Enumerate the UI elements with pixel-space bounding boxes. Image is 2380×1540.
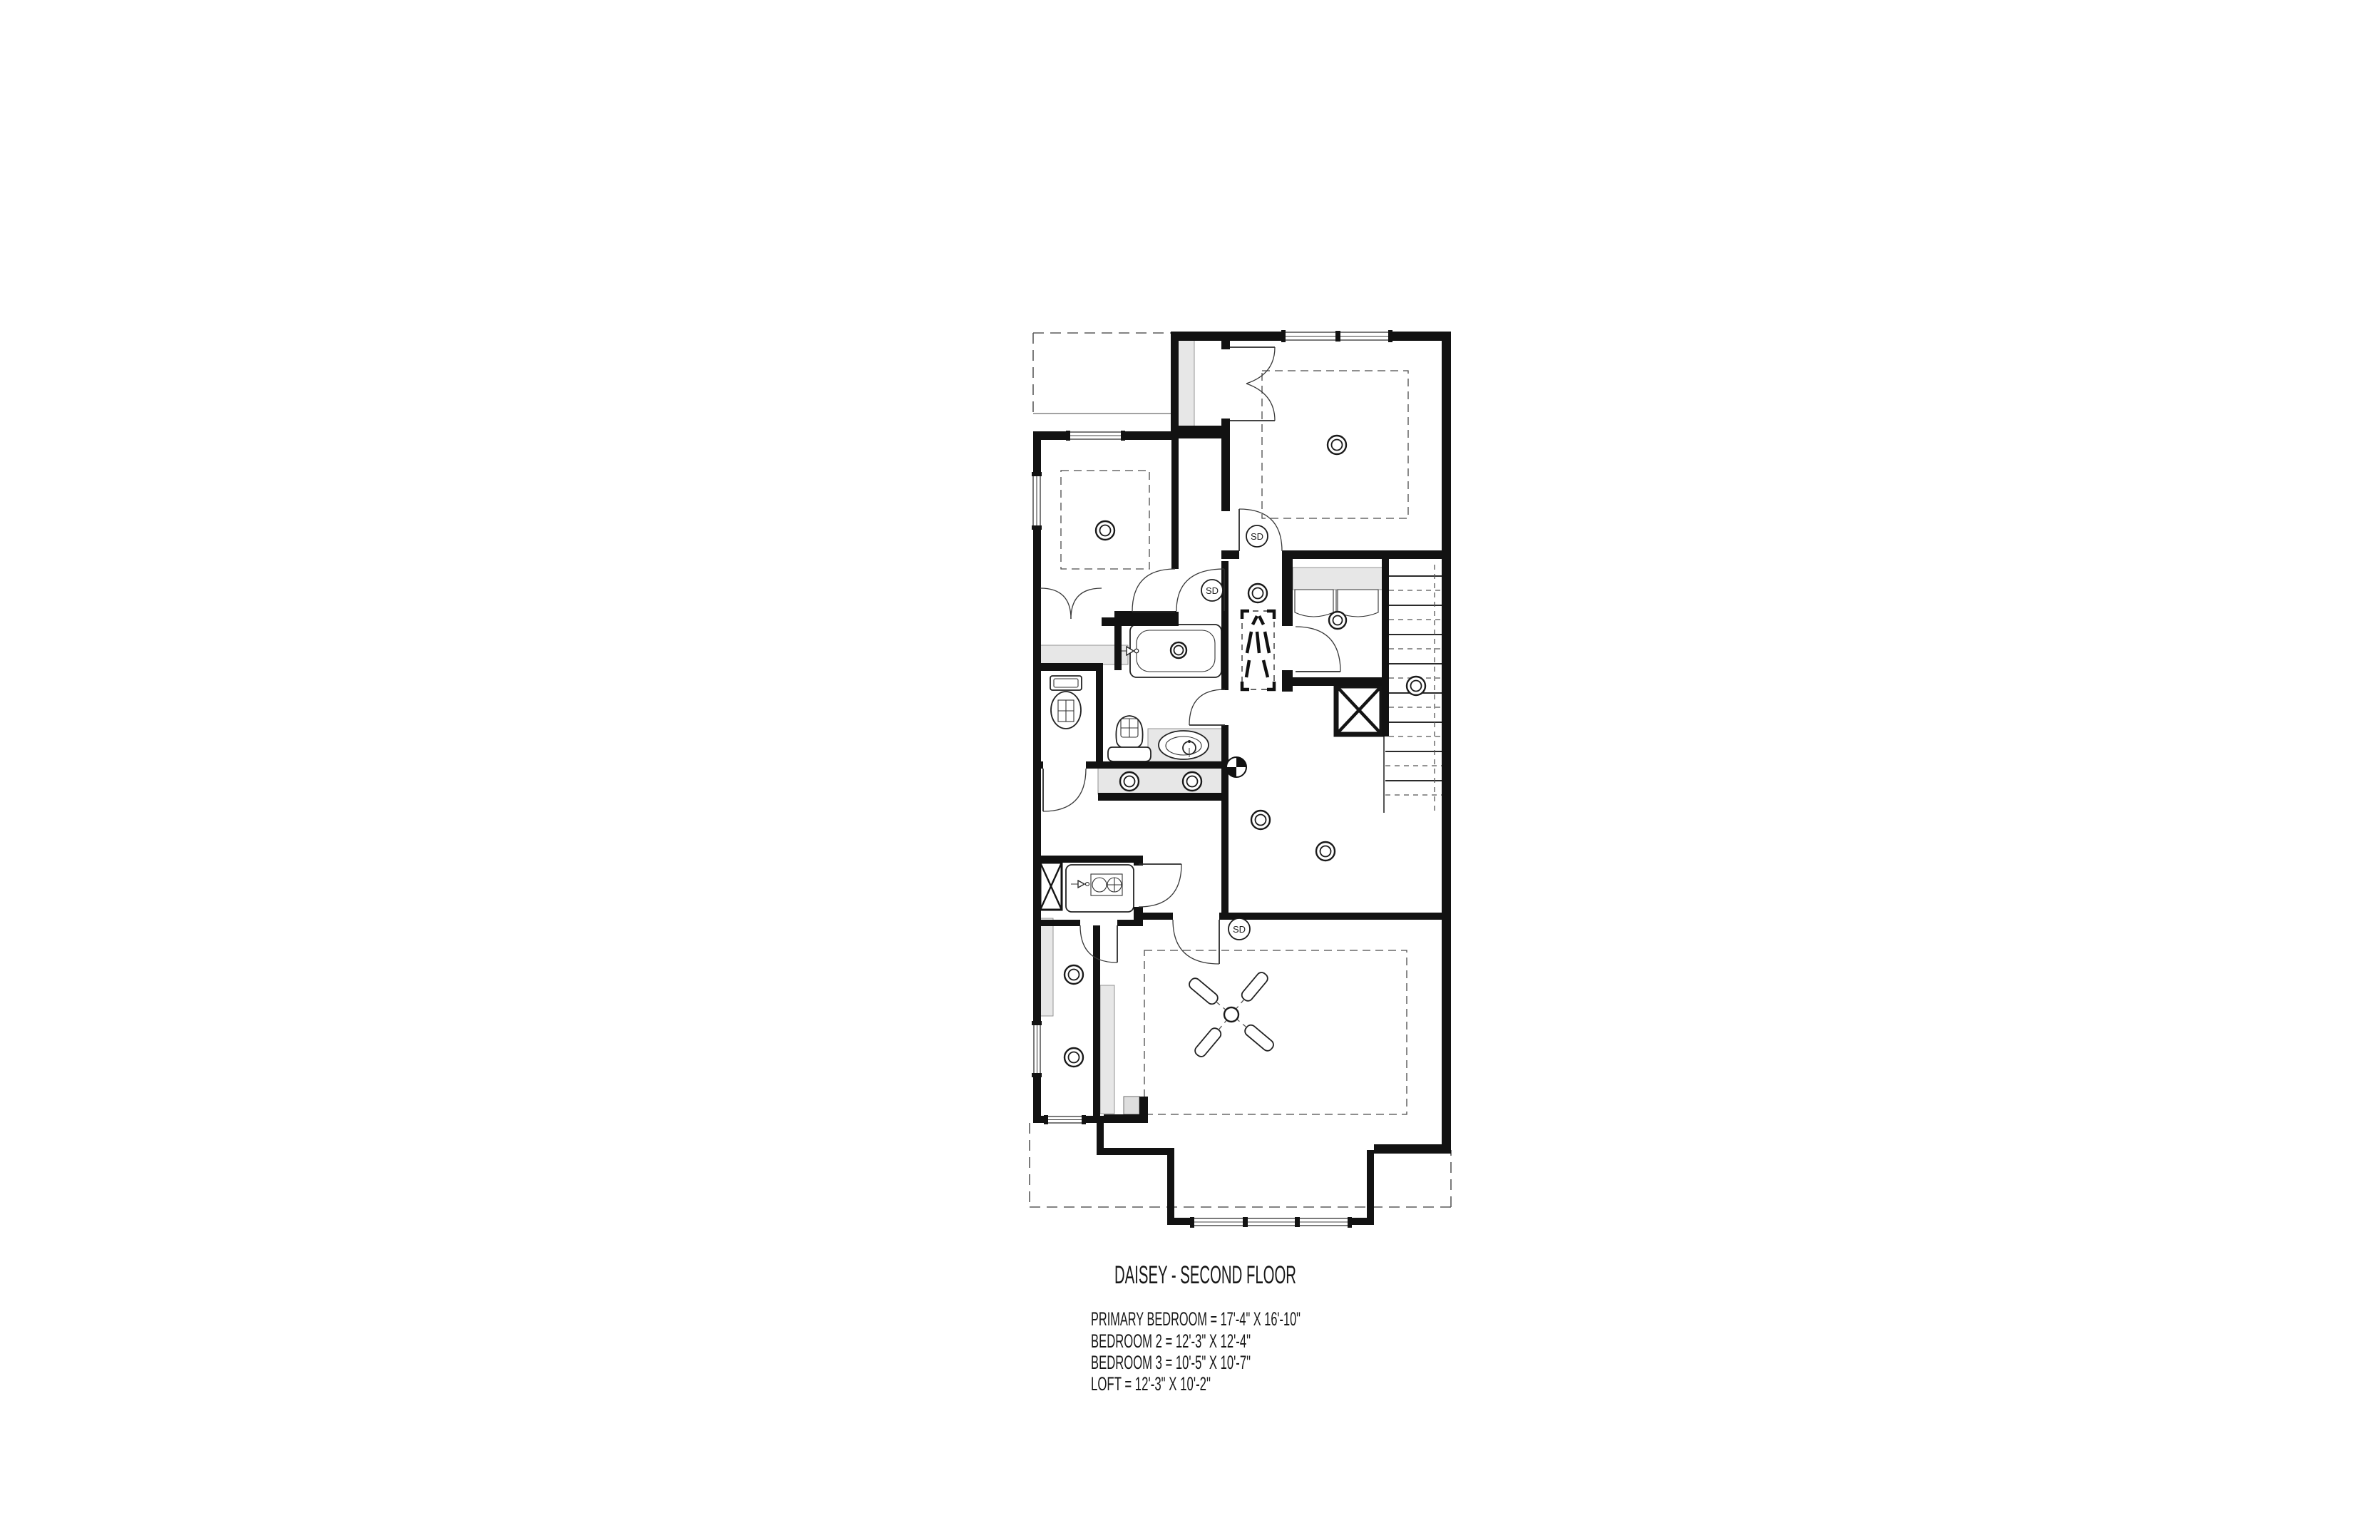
linen-closet-x-icon [1040,863,1062,910]
vanity-counter [1098,767,1223,794]
centroid-marker-icon [1226,757,1246,777]
shelf-icon [1040,918,1053,1016]
ceiling-light-icon [1183,772,1201,791]
ceiling-light-icon [1248,584,1267,602]
svg-text:SD: SD [1251,531,1263,542]
door-swing-icon [1040,588,1102,619]
room-dimension-bedroom3: BEDROOM 3 = 10'-5" X 10'-7" [1091,1352,1251,1373]
room-dimension-primary: PRIMARY BEDROOM = 17'-4" X 16'-10" [1091,1308,1301,1330]
svg-text:SD: SD [1233,924,1246,935]
window-icon [1032,472,1042,530]
tray-primary [1144,950,1407,1114]
sink-icon [1159,731,1209,759]
smoke-detector-icon: SD [1229,918,1250,940]
laundry-sink-icon [1066,865,1134,912]
door-swing-icon [1173,920,1219,964]
room-dimension-bedroom2: BEDROOM 2 = 12'-3" X 12'-4" [1091,1330,1251,1352]
window-icon [1190,1217,1352,1228]
ceiling-light-icon [1328,436,1346,454]
door-swing-icon [1296,627,1340,672]
ceiling-light-icon [1251,811,1270,829]
attic-access-icon [1242,611,1274,689]
linen-closet-x-icon [1336,686,1382,734]
drawing-labels: DAISEY - SECOND FLOOR PRIMARY BEDROOM = … [1091,1261,1301,1395]
ceiling-light-icon [1065,965,1083,984]
floor-plan-drawing: SD SD SD DAISEY - SECOND FLOOR PRIMARY B… [1004,307,1503,1419]
window-icon [1044,1115,1086,1124]
walls [1033,332,1451,1225]
chase [1178,337,1194,431]
chase [1124,1097,1139,1114]
bathtub-icon [1118,625,1221,677]
toilet-icon [1050,676,1082,729]
closet-rod-icon [1295,590,1378,629]
door-swing-icon [1230,347,1275,421]
room-dimension-loft: LOFT = 12'-3" X 10'-2" [1091,1373,1211,1395]
ceiling-light-icon [1065,1048,1083,1067]
ceiling-light-icon [1120,772,1139,791]
window-icon [1032,1021,1042,1077]
smoke-detector-icon: SD [1201,580,1223,601]
window-icon [1066,431,1125,441]
door-swing-icon [1043,769,1086,811]
shelf-icon [1100,985,1114,1114]
shelf-icon [1293,568,1383,590]
page-title: DAISEY - SECOND FLOOR [1114,1261,1296,1289]
window-icon [1281,330,1392,342]
door-swing-icon [1132,569,1175,612]
ceiling-light-icon [1407,677,1425,695]
door-swing-icon [1189,689,1225,725]
smoke-detector-icon: SD [1246,525,1268,547]
ceiling-light-icon [1096,521,1114,540]
tray-bedroom3 [1061,471,1149,569]
toilet-icon [1108,716,1151,761]
ceiling-light-icon [1316,842,1335,861]
svg-text:SD: SD [1206,585,1219,596]
door-swing-icon [1139,864,1181,907]
floorplan-page: SD SD SD DAISEY - SECOND FLOOR PRIMARY B… [0,0,2380,1540]
ceiling-fan-icon [1187,970,1276,1059]
